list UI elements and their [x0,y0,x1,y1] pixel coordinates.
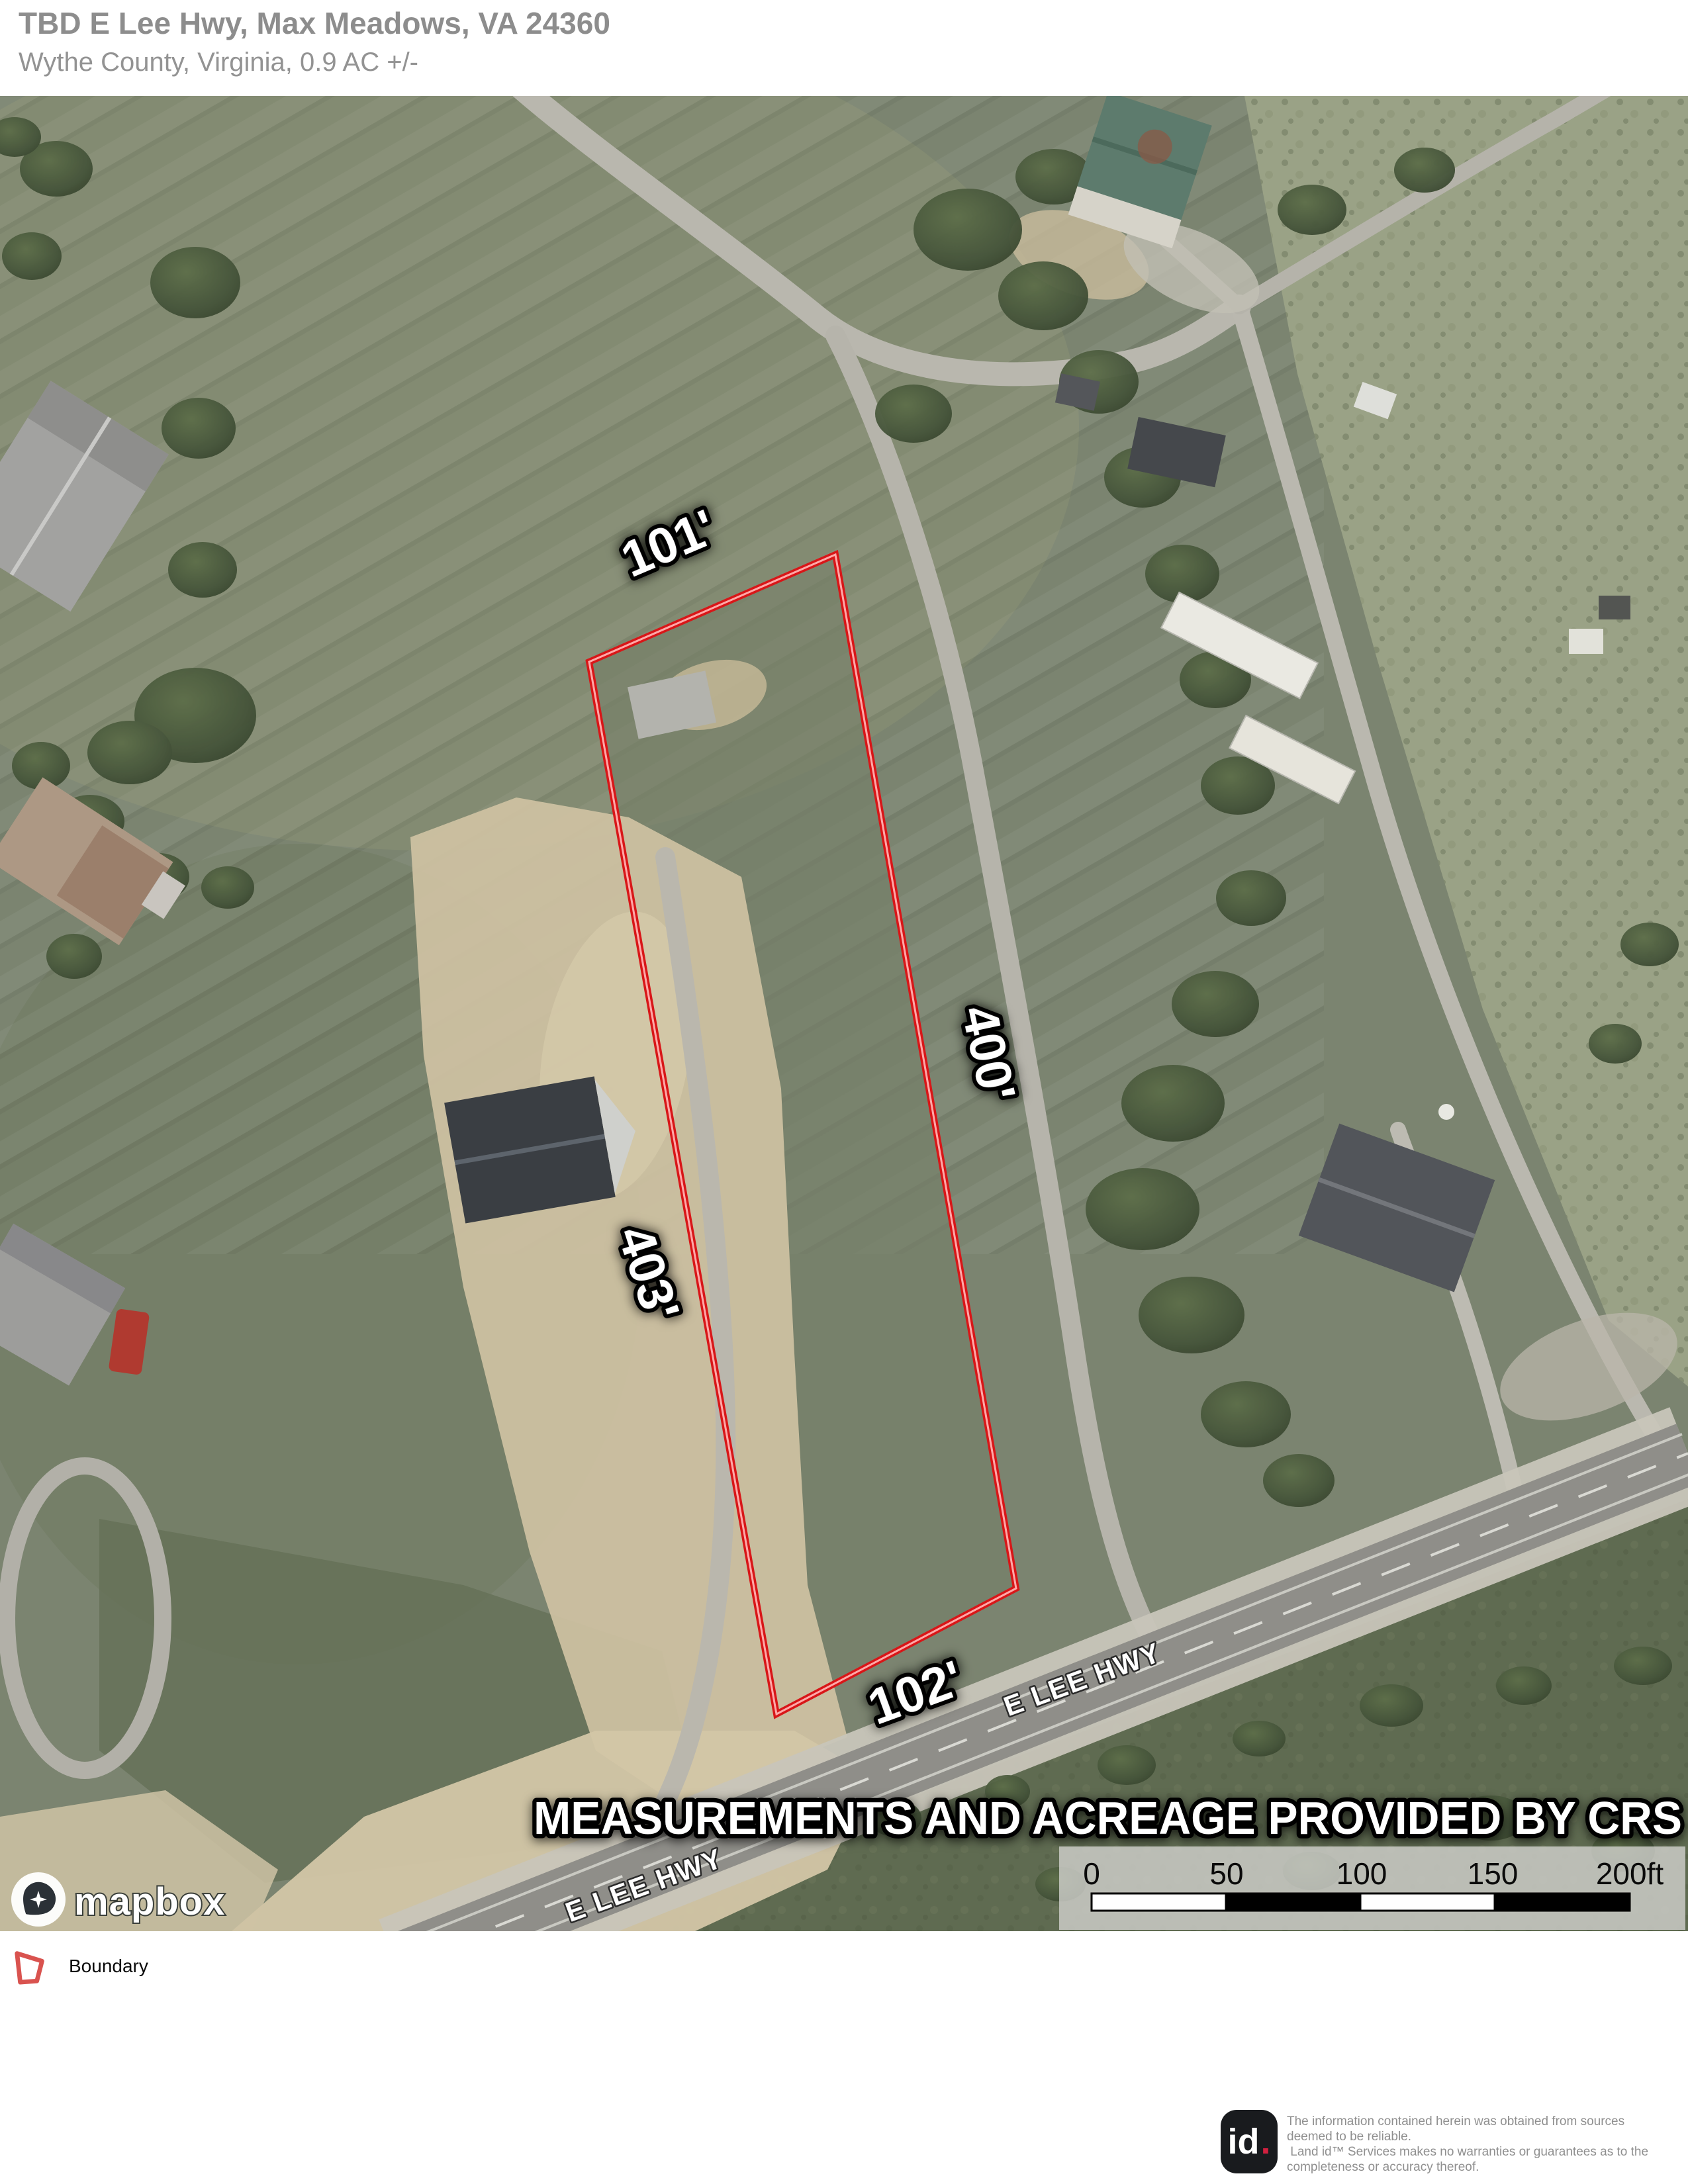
legend-boundary-label: Boundary [69,1956,148,1977]
page-title: TBD E Lee Hwy, Max Meadows, VA 24360 [19,5,610,41]
property-map-page: TBD E Lee Hwy, Max Meadows, VA 24360 Wyt… [0,0,1688,2184]
scale-bar: 0 50 100 150 200ft [1059,1846,1685,1930]
footer: id . The information contained herein wa… [1221,2110,1648,2175]
scale-tick-0: 0 [1083,1856,1100,1891]
mapbox-wordmark: mapbox [74,1880,225,1923]
boundary-legend-icon [12,1946,50,1987]
scale-tick-200ft: 200ft [1596,1856,1664,1891]
scale-tick-150: 150 [1468,1856,1519,1891]
disclaimer-line: Land id™ Services makes no warranties or… [1287,2144,1648,2160]
landid-logo-dot: . [1260,2124,1270,2160]
disclaimer-line: completeness or accuracy thereof. [1287,2160,1648,2175]
landid-logo-text: id [1227,2124,1259,2160]
mapbox-attribution: mapbox [11,1872,225,1927]
scale-tick-50: 50 [1209,1856,1243,1891]
white-dot [1438,1104,1454,1120]
page-subtitle: Wythe County, Virginia, 0.9 AC +/- [19,48,610,77]
aerial-map: 101' 400' 403' 102' E LEE HWY E LEE HWY … [0,96,1688,1931]
small-object-light [1569,629,1603,654]
disclaimer-line: deemed to be reliable. [1287,2129,1648,2144]
scale-tick-100: 100 [1336,1856,1387,1891]
landid-logo: id . [1221,2110,1278,2173]
measurements-note: MEASUREMENTS AND ACREAGE PROVIDED BY CRS [534,1792,1682,1844]
small-object-dark [1599,596,1630,619]
listing-header: TBD E Lee Hwy, Max Meadows, VA 24360 Wyt… [19,5,610,77]
map-legend: Boundary [12,1946,148,1987]
disclaimer-line: The information contained herein was obt… [1287,2114,1648,2129]
disclaimer: The information contained herein was obt… [1287,2110,1648,2175]
